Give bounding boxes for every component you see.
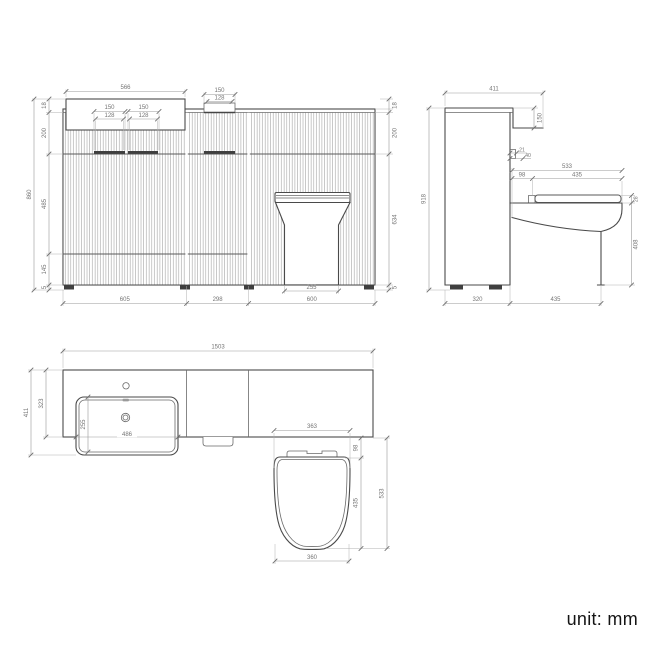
unit-note: unit: mm: [567, 609, 638, 630]
mid-handle-tab: [203, 437, 233, 446]
drawer-handle: [128, 151, 158, 154]
dim-plan-pan-overall: 533: [380, 488, 386, 499]
dim-front-drawer-height: 200: [42, 127, 48, 138]
dim-plan-setback: 98: [354, 444, 360, 451]
dim-front-recess-inner: 128: [214, 96, 225, 102]
dim-front-mid-height: 485: [42, 198, 48, 209]
dim-side-projection: 435: [550, 297, 561, 303]
dim-front-handle-a-inner: 128: [104, 113, 115, 119]
dim-plan-basin-depth: 255: [81, 419, 87, 430]
dim-side-fascia-drop: 150: [538, 112, 544, 123]
dim-front-handle-a-outer: 150: [104, 105, 115, 111]
dim-side-pan-run: 435: [572, 172, 583, 178]
seat-profile: [535, 195, 621, 203]
dim-plan-overall-depth: 411: [24, 407, 30, 417]
foot: [64, 285, 74, 290]
dim-side-pan-overall: 533: [562, 164, 573, 170]
dim-front-r-drawer-height: 200: [393, 127, 399, 138]
drawer-handle: [204, 151, 235, 154]
technical-drawing: 566 150 128 150 128 150 128 18 200 485 1…: [0, 0, 650, 650]
foot: [180, 285, 190, 290]
dim-plan-counter-depth: 323: [39, 398, 45, 409]
dim-front-handle-b-outer: 150: [138, 105, 149, 111]
drawer-handle: [94, 151, 125, 154]
dim-side-overall-height: 918: [422, 193, 428, 204]
dim-front-r-counter-thickness: 18: [393, 102, 399, 109]
side-toilet: [510, 195, 622, 285]
dim-plan-overall-width: 1503: [211, 345, 225, 351]
dim-front-handle-b-inner: 128: [138, 113, 149, 119]
dim-front-plinth: 5: [42, 285, 48, 289]
foot: [364, 285, 374, 290]
dim-plan-seat-bottom-width: 360: [307, 555, 318, 561]
waste-hole: [121, 413, 129, 421]
dim-plan-seat-depth: 435: [354, 497, 360, 508]
dim-front-pedestal-width: 255: [306, 285, 317, 291]
dim-side-base-depth: 320: [472, 297, 483, 303]
seat-outline: [274, 457, 350, 549]
dim-front-r-plinth: 5: [393, 285, 399, 289]
dim-side-seat-thickness: 28: [634, 196, 640, 202]
plan-toilet: [274, 451, 350, 549]
dim-front-vanity-width: 605: [120, 297, 131, 303]
tap-hole: [123, 383, 129, 389]
dim-side-top-depth: 411: [489, 87, 499, 93]
dim-side-setback: 98: [519, 172, 526, 178]
dim-front-counter-thickness: 18: [42, 102, 48, 109]
front-view: 566 150 128 150 128 150 128 18 200 485 1…: [27, 85, 399, 306]
foot: [489, 285, 502, 290]
side-view: 411 150 21 40 533 98 435 28 408 918 320 …: [422, 87, 640, 307]
dim-front-wc-width: 600: [307, 297, 318, 303]
front-mid-recess: [204, 103, 235, 113]
dim-plan-basin-width: 486: [122, 432, 133, 438]
plan-basin: [76, 397, 178, 455]
foot: [244, 285, 254, 290]
dim-front-r-body-height: 634: [393, 214, 399, 225]
dim-side-gap: 21: [519, 147, 525, 153]
front-toilet: [275, 193, 350, 285]
dim-front-lower-height: 145: [42, 264, 48, 275]
dim-front-basin-width: 566: [120, 85, 131, 91]
dim-side-bracket: 40: [525, 153, 531, 159]
dim-plan-seat-width: 363: [307, 424, 318, 430]
dim-front-overall-height: 860: [27, 189, 33, 200]
dim-front-recess-outer: 150: [214, 88, 225, 94]
plan-view: 1503 411 323 255 486 363 98 435 533 360: [24, 345, 390, 565]
dim-front-mid-width: 298: [213, 297, 224, 303]
cistern-lid: [287, 451, 337, 457]
front-basin: [66, 99, 185, 130]
overflow-slot: [123, 399, 130, 402]
dim-side-pan-height: 408: [634, 239, 640, 250]
foot: [450, 285, 463, 290]
